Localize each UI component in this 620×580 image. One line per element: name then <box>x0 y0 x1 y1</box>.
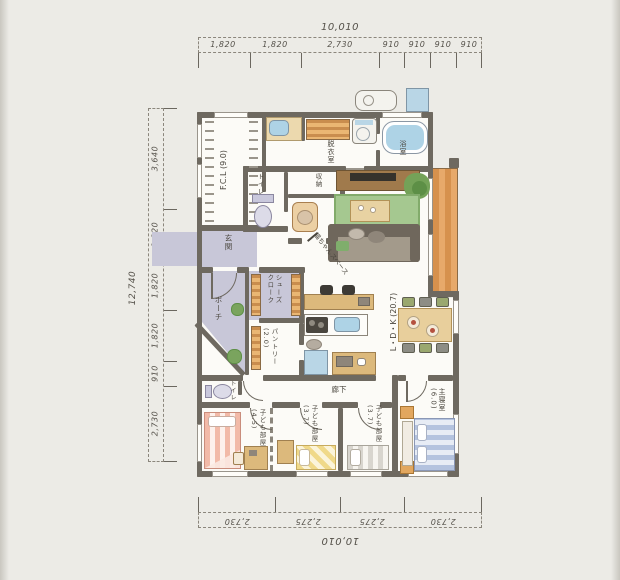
wall <box>288 238 302 244</box>
dim-tick <box>379 53 380 68</box>
dim-left-seg: 910 <box>151 346 162 402</box>
dining-table <box>398 308 452 342</box>
room-label-fcl: F.C.L (9.0) <box>219 132 231 208</box>
dim-tick <box>164 461 177 462</box>
room-label-kids2: 子ども部屋 (3.7) <box>296 405 318 465</box>
wall <box>245 271 249 375</box>
dim-tick <box>481 497 482 512</box>
window <box>296 471 328 477</box>
chair <box>342 285 355 295</box>
floor-plan-page: { "plan": { "rooms": { "fcl": "F.C.L (9.… <box>0 0 620 580</box>
room-label-entrance: 玄関 <box>222 234 233 262</box>
dim-top-seg: 910 <box>451 40 487 51</box>
nightstand <box>400 406 414 419</box>
dim-tick <box>250 53 251 68</box>
wall <box>259 318 305 323</box>
dim-left-seg: 3,640 <box>151 131 162 187</box>
dim-tick <box>340 497 341 512</box>
room-label-kids1: 子ども部屋 (4.5) <box>244 409 266 469</box>
burner <box>309 320 315 326</box>
room-label-master: 主寝室 (6.0) <box>424 388 446 444</box>
plant <box>231 303 244 316</box>
burner <box>318 322 324 328</box>
dim-top-total: 10,010 <box>198 22 482 34</box>
refrigerator <box>304 350 328 375</box>
wall <box>263 375 376 381</box>
water-heater-tank <box>406 88 429 112</box>
cat <box>297 210 313 225</box>
printer <box>358 297 370 306</box>
chair <box>419 343 432 353</box>
dim-tick <box>301 53 302 68</box>
approach-slab <box>152 232 202 266</box>
wall <box>338 408 343 471</box>
window <box>382 112 422 118</box>
toilet-bowl <box>254 205 272 228</box>
washing-machine-drum <box>356 127 370 141</box>
cup <box>358 205 364 211</box>
water-heater-dial <box>363 95 374 106</box>
wall <box>284 172 288 212</box>
room-label-shoe-closet: シューズ クローク <box>262 274 282 318</box>
dim-tick <box>430 53 431 68</box>
cushion <box>336 241 349 251</box>
dim-bottom-seg: 2,730 <box>219 515 255 526</box>
pillow <box>208 416 236 427</box>
cat <box>348 228 365 240</box>
microwave <box>336 356 353 367</box>
window <box>197 124 202 158</box>
headboard <box>402 421 413 466</box>
dim-bottom-seg: 2,275 <box>290 515 326 526</box>
wall <box>197 402 250 408</box>
cat <box>368 231 385 243</box>
washing-machine-lid <box>355 120 373 125</box>
food <box>411 320 416 325</box>
chair <box>320 285 333 295</box>
dim-tick <box>164 310 177 311</box>
dim-left-total: 12,740 <box>128 248 140 328</box>
water-heater-unit <box>355 90 397 111</box>
dim-tick <box>164 209 177 210</box>
dim-tick <box>275 497 276 512</box>
dim-tick <box>198 497 199 512</box>
dim-tick <box>164 386 177 387</box>
room-label-ldk: L・D・K (20.7) <box>388 282 400 362</box>
dim-tick <box>404 497 405 512</box>
chair <box>419 297 432 307</box>
dim-top-seg: 1,820 <box>205 40 241 51</box>
room-label-bath: 浴室 <box>396 140 407 166</box>
window <box>212 471 248 477</box>
chair <box>402 343 415 353</box>
window <box>428 234 433 276</box>
dim-bottom-total: 10,010 <box>303 534 377 546</box>
room-label-laundry: 脱衣室 <box>324 140 335 170</box>
wall <box>398 375 406 381</box>
window <box>197 164 202 198</box>
dim-tick <box>404 53 405 68</box>
master-door-leaf <box>406 381 408 402</box>
dim-bottom-seg: 2,730 <box>425 515 461 526</box>
dim-tick <box>456 53 457 68</box>
kitchen-sink <box>334 317 360 332</box>
window <box>350 471 382 477</box>
dim-left-seg: 2,730 <box>151 396 162 452</box>
wall <box>392 375 398 477</box>
page-edge-right <box>611 0 620 580</box>
dim-tick <box>164 108 177 109</box>
tv <box>350 173 396 181</box>
window <box>408 471 448 477</box>
window <box>197 424 202 462</box>
chair <box>402 297 415 307</box>
sofa-arm <box>410 224 420 262</box>
wall <box>243 166 248 232</box>
room-label-hallway: 廊下 <box>328 384 350 396</box>
dim-tick <box>164 361 177 362</box>
page-edge-left <box>0 0 9 580</box>
hanger-rack <box>205 119 214 222</box>
deck-post <box>449 158 459 168</box>
pillow <box>417 446 427 463</box>
dim-bottom-seg: 2,275 <box>354 515 390 526</box>
dim-top-seg: 2,730 <box>322 40 358 51</box>
plant <box>227 349 242 364</box>
toilet-tank <box>205 385 212 398</box>
wall <box>238 381 242 395</box>
wood-deck <box>432 168 458 292</box>
window <box>453 300 459 334</box>
room-label-kids3: 子ども部屋 (3.7) <box>360 405 382 465</box>
laundry-counter <box>306 119 350 140</box>
shoe-shelf <box>291 274 301 316</box>
wall <box>288 194 340 198</box>
dim-tick <box>481 53 482 68</box>
wall <box>197 375 243 381</box>
rice-cooker <box>357 358 366 366</box>
cat <box>306 339 322 350</box>
dim-top-seg: 1,820 <box>257 40 293 51</box>
chair <box>436 343 449 353</box>
room-label-toilet-lower: トイレ <box>227 380 236 401</box>
food <box>430 328 435 333</box>
cup <box>370 207 376 213</box>
desk <box>277 440 294 464</box>
vanity-sink <box>269 120 289 136</box>
shoe-shelf <box>251 274 261 316</box>
room-label-porch: ポーチ <box>212 296 223 328</box>
room-label-storage: 収納 <box>312 173 322 193</box>
room-label-pantry: パントリー (2.0) <box>258 328 278 372</box>
window <box>214 112 248 118</box>
room-label-toilet-upper: トイレ <box>254 173 264 197</box>
wall <box>428 375 453 381</box>
dim-tick <box>198 53 199 68</box>
chair <box>233 452 244 465</box>
chair <box>436 297 449 307</box>
